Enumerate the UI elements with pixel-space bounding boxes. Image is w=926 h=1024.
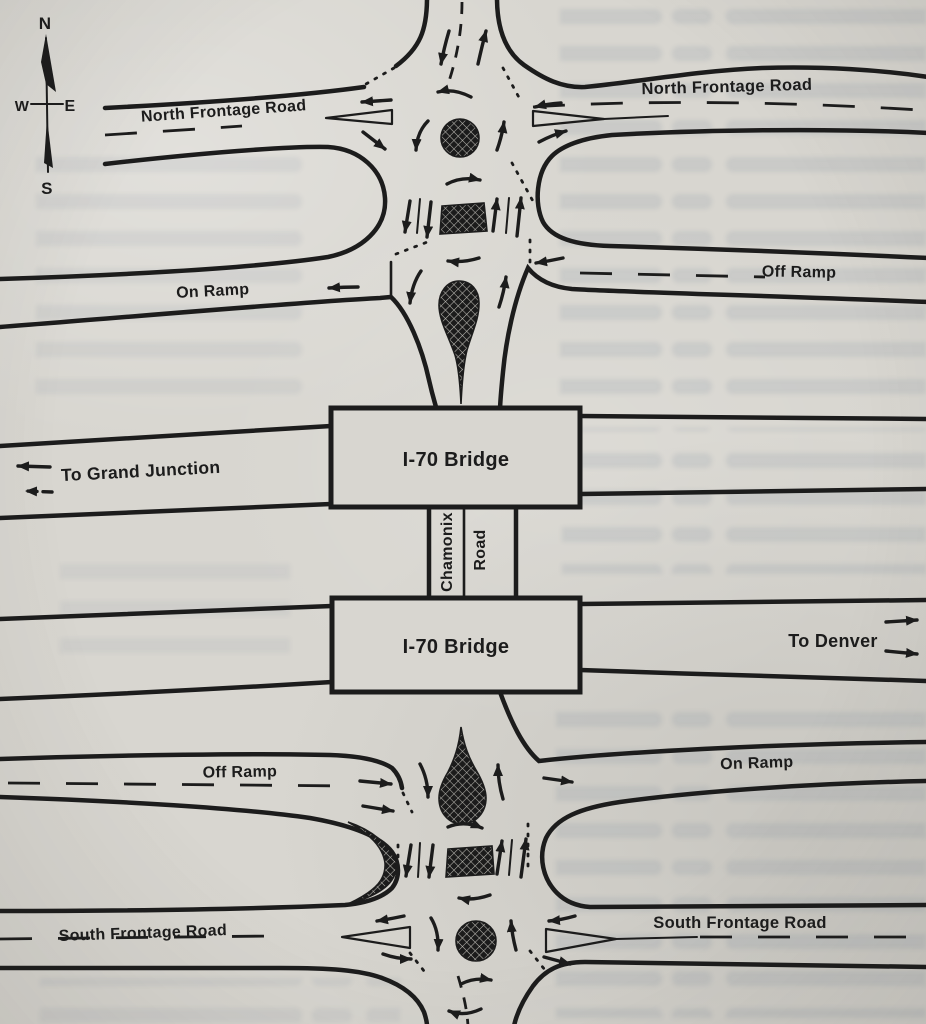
island-rect-top — [440, 203, 487, 234]
crossing-dots — [410, 953, 424, 971]
label-off-ramp-lower-left: Off Ramp — [203, 763, 278, 781]
scanned-book-page: N W E S North Frontage Road North Fronta… — [0, 0, 926, 1024]
off-ramp-lower-left-lane-line — [8, 783, 352, 786]
crossing-dots — [396, 241, 430, 254]
compass-w-label: W — [15, 98, 30, 115]
compass-s-label: S — [41, 179, 53, 198]
crossing-dots — [530, 951, 545, 970]
wb-i70-left-bottom — [0, 504, 331, 518]
eb-i70-right-bottom — [580, 670, 926, 681]
off-ramp-lower-left-bottom-and-south-frontage-left-top — [0, 797, 398, 911]
compass-north-blade — [41, 34, 56, 92]
label-i70-bridge-upper: I-70 Bridge — [403, 449, 510, 471]
label-off-ramp-upper-right: Off Ramp — [762, 263, 837, 281]
gore-triangle-south-frontage-left — [342, 927, 410, 948]
island-circle-top — [441, 119, 479, 157]
label-chamonix: Chamonix — [439, 512, 456, 592]
compass-south-blade — [44, 118, 53, 168]
north-leg-center-line — [446, 2, 462, 90]
crossing-dots — [403, 793, 412, 812]
off-ramp-lower-left-top-edge — [0, 754, 402, 788]
island-circle-bottom — [456, 921, 496, 961]
label-south-frontage-right: South Frontage Road — [653, 914, 826, 932]
island-rect-bottom — [446, 846, 494, 877]
crossing-dots — [366, 68, 394, 84]
wb-i70-left-top — [0, 426, 331, 446]
crossing-dots — [512, 163, 534, 203]
compass-e-label: E — [65, 98, 76, 115]
interchange-diagram: N W E S North Frontage Road North Fronta… — [0, 0, 926, 1024]
compass-n-label: N — [39, 14, 52, 33]
wb-i70-right-top — [580, 416, 926, 419]
crossing-dots — [503, 68, 522, 103]
label-on-ramp-lower-right: On Ramp — [720, 754, 794, 774]
label-south-frontage-left: South Frontage Road — [58, 922, 227, 945]
eb-i70-right-top — [580, 600, 926, 604]
eb-i70-left-bottom — [0, 682, 332, 699]
label-to-grand-junction: To Grand Junction — [61, 457, 221, 485]
label-i70-bridge-lower: I-70 Bridge — [403, 636, 510, 658]
north-frontage-left-lane-line — [105, 126, 242, 135]
north-leg-west-edge — [396, 0, 427, 66]
label-to-denver: To Denver — [788, 631, 877, 651]
island-teardrop-top — [439, 281, 479, 404]
label-chamonix-road-word: Road — [472, 529, 489, 570]
gore-triangle-north-frontage-left — [326, 110, 392, 124]
island-teardrop-bottom — [439, 727, 486, 824]
